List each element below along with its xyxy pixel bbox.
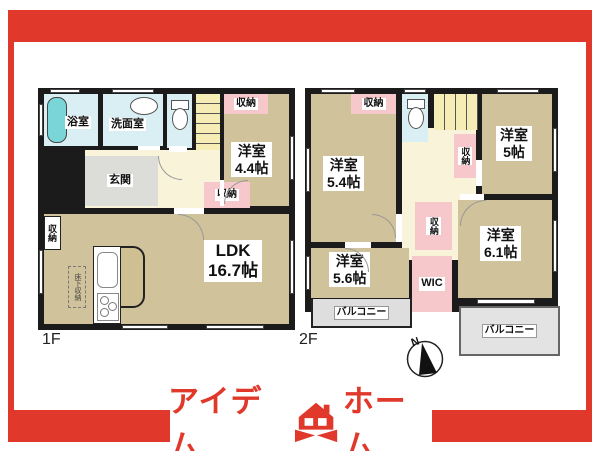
- bathroom-label: 浴室: [65, 116, 91, 129]
- frame-right-bar: [586, 42, 592, 442]
- window: [112, 89, 154, 93]
- window: [50, 89, 80, 93]
- washroom-label: 洗面室: [109, 118, 146, 131]
- bedroom-6-1-label: 洋室 6.1帖: [480, 226, 521, 261]
- storage-2f-a-label: 収納: [362, 98, 386, 110]
- floor1-label: 1F: [42, 331, 61, 349]
- window: [306, 148, 310, 192]
- bathroom: 浴室: [44, 94, 98, 146]
- storage-1f-a-label: 収納: [234, 98, 258, 110]
- entrance-label: 玄関: [107, 174, 133, 187]
- window: [321, 89, 355, 93]
- bedroom-5: 洋室 5帖: [482, 94, 552, 194]
- bedroom-5-4-label: 洋室 5.4帖: [323, 156, 364, 191]
- kitchen-counter: [93, 246, 121, 324]
- door-opening: [460, 194, 484, 200]
- window: [477, 299, 535, 304]
- sink-icon: [130, 97, 158, 115]
- ldk-room: LDK 16.7帖 床下収納: [44, 214, 289, 324]
- frame-left-bar: [8, 42, 14, 442]
- balcony-right-label: バルコニー: [482, 324, 538, 338]
- window: [306, 256, 310, 290]
- door-opening: [396, 214, 402, 242]
- door-opening: [476, 160, 482, 186]
- washroom: 洗面室: [103, 94, 163, 146]
- door-opening: [345, 242, 371, 248]
- ldk-label: LDK 16.7帖: [204, 240, 262, 282]
- storage-2f-b-label: 収納: [458, 147, 473, 165]
- storage-1f-c: 収納: [44, 216, 61, 250]
- storage-2f-c: 収納: [415, 202, 452, 250]
- bathtub-icon: [47, 97, 67, 143]
- house-logo-icon: [294, 399, 338, 443]
- storage-1f-a: 収納: [224, 94, 268, 114]
- storage-2f-c-label: 収納: [426, 217, 441, 235]
- storage-2f-b: 収納: [454, 134, 476, 178]
- frame-bottom-left-bar: [8, 410, 170, 442]
- wic-label: WIC: [419, 277, 444, 290]
- window: [39, 104, 43, 136]
- window: [206, 325, 264, 329]
- floorplan-flyer: 浴室 洗面室 洋室 4.4帖 収納 玄関: [0, 0, 600, 451]
- storage-1f-c-label: 収納: [46, 224, 59, 242]
- door-opening: [169, 146, 187, 152]
- burner-icon: [108, 302, 117, 311]
- door-opening: [138, 146, 160, 150]
- floor2-plan: 洋室 5.4帖 収納 収納 洋室 5帖: [305, 88, 558, 312]
- wic-room: WIC: [412, 256, 452, 312]
- bedroom-4-4-label: 洋室 4.4帖: [231, 142, 272, 177]
- floor1-plan: 浴室 洗面室 洋室 4.4帖 収納 玄関: [38, 88, 295, 330]
- window: [290, 136, 294, 180]
- underfloor-storage: 床下収納: [68, 266, 86, 308]
- toilet-room-2f: [402, 94, 428, 142]
- compass-icon: N: [402, 332, 448, 380]
- toilet-room-1f: [167, 94, 192, 148]
- balcony-right: バルコニー: [459, 306, 560, 356]
- window: [497, 89, 539, 93]
- kitchen-sink-icon: [97, 252, 118, 288]
- window: [39, 250, 43, 294]
- underfloor-storage-label: 床下収納: [72, 273, 82, 301]
- window: [553, 220, 557, 272]
- floor2-label: 2F: [299, 331, 318, 349]
- balcony-left-label: バルコニー: [334, 306, 390, 320]
- kitchen-island: [118, 246, 145, 308]
- brand-text-left: アイデム: [168, 376, 289, 451]
- window: [122, 325, 168, 329]
- storage-2f-a: 収納: [351, 94, 396, 114]
- brand-logo: アイデム ホーム: [168, 394, 434, 448]
- bedroom-5-label: 洋室 5帖: [496, 126, 532, 161]
- brand-text-right: ホーム: [343, 376, 434, 451]
- window: [290, 240, 294, 294]
- toilet-bowl-icon: [408, 107, 424, 129]
- balcony-left: バルコニー: [311, 299, 412, 328]
- stove-icon: [97, 293, 119, 321]
- burner-icon: [100, 308, 109, 317]
- window: [553, 128, 557, 172]
- frame-bottom-right-bar: [432, 410, 592, 442]
- entrance-hall: 玄関: [85, 156, 158, 206]
- window: [404, 89, 426, 93]
- toilet-bowl-icon: [172, 108, 188, 130]
- frame-top-bar: [8, 10, 592, 42]
- stairs-2f: [434, 94, 478, 130]
